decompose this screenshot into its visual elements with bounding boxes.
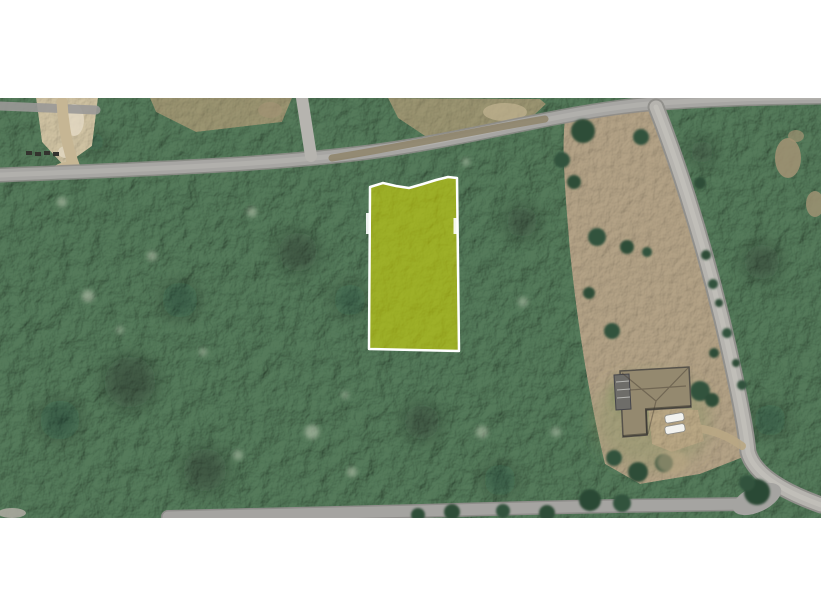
satellite-image xyxy=(0,0,821,616)
house-deck xyxy=(614,374,631,410)
tan-patch-top-right xyxy=(775,138,801,178)
screenshot-canvas xyxy=(0,0,821,616)
aerial-photo xyxy=(0,96,821,522)
driveway-spill xyxy=(656,450,688,474)
top-left-road-stub xyxy=(0,106,96,110)
parcel-highlight[interactable] xyxy=(369,177,459,351)
parcel-highlight-group xyxy=(368,177,459,351)
